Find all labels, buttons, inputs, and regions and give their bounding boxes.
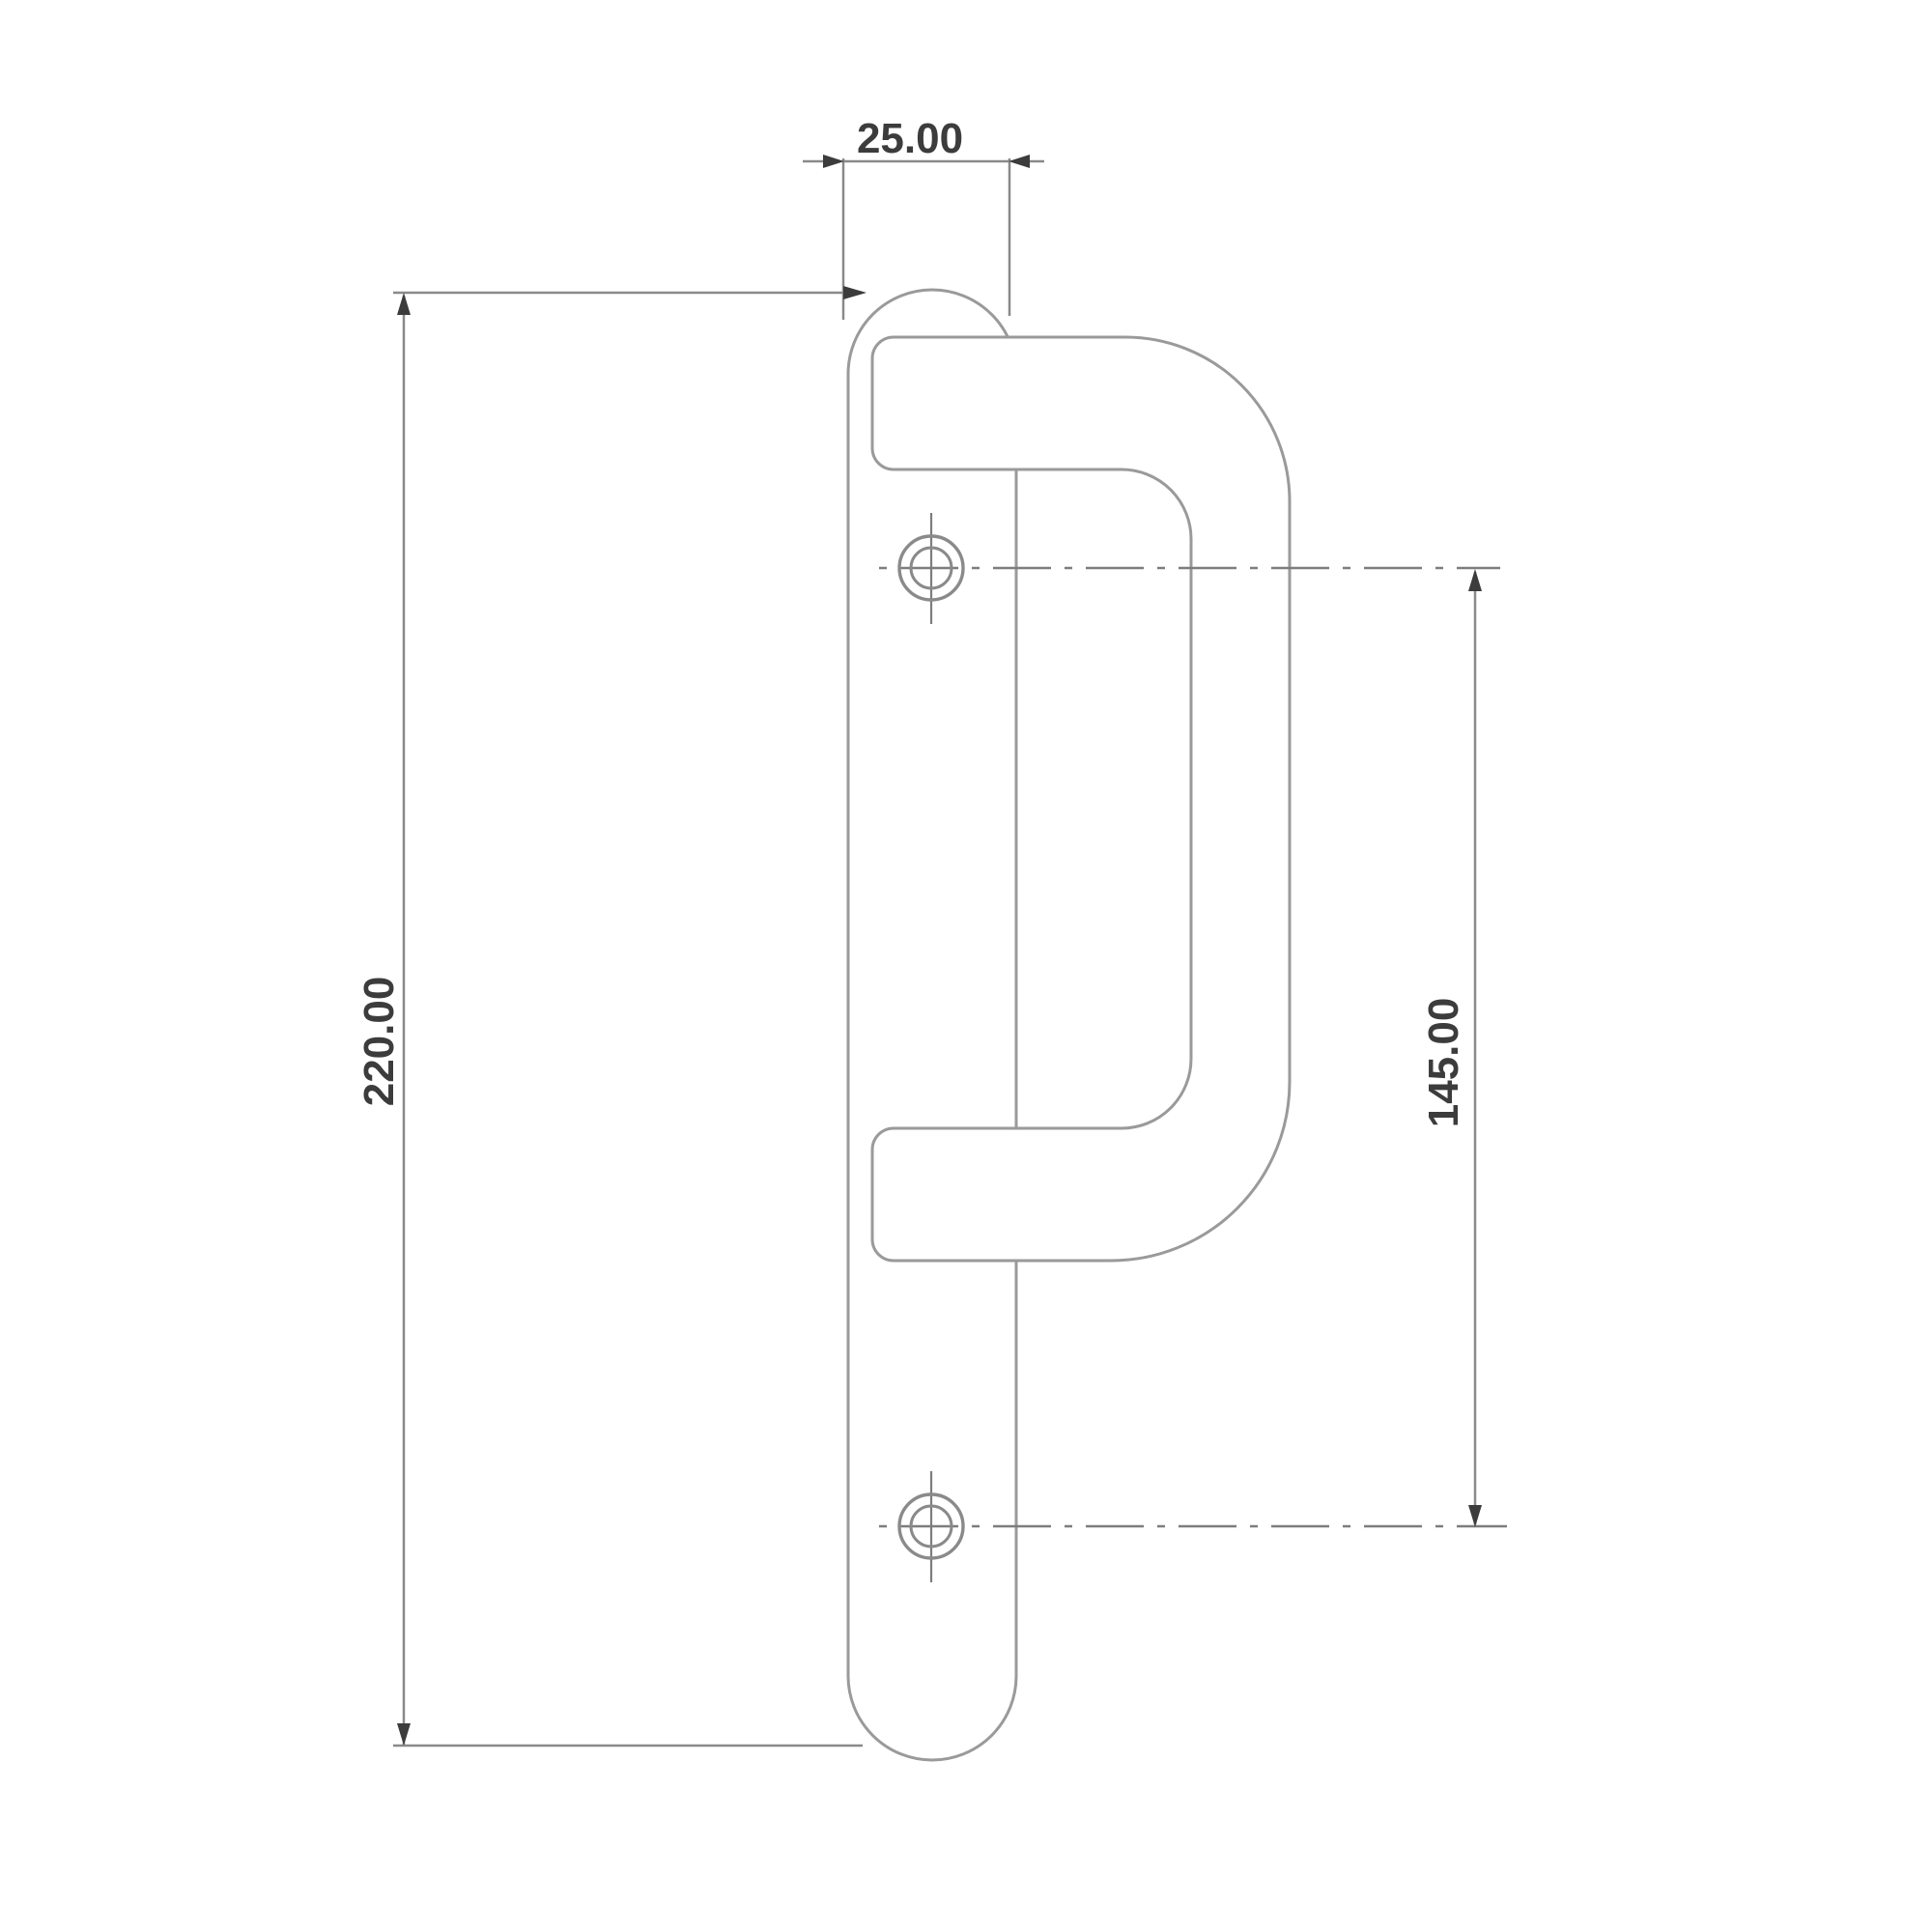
arrow-up-icon [1468, 569, 1482, 591]
dimension-spacing-label: 145.00 [1420, 998, 1467, 1128]
arrow-right-icon [843, 286, 867, 299]
arrow-right-icon [823, 155, 844, 168]
dimension-width-label: 25.00 [857, 115, 963, 162]
arrow-down-icon [1468, 1505, 1482, 1527]
dim-screw-spacing: 145.00 [1420, 569, 1482, 1527]
drawing-canvas: 25.00 220.00 145.00 [0, 0, 1932, 1932]
arrow-left-icon [1009, 155, 1030, 168]
arrow-up-icon [397, 293, 411, 315]
dimension-height-label: 220.00 [355, 977, 403, 1107]
arrow-down-icon [397, 1723, 411, 1746]
dim-plate-height: 220.00 [355, 286, 867, 1746]
technical-drawing-svg: 25.00 220.00 145.00 [0, 0, 1932, 1932]
